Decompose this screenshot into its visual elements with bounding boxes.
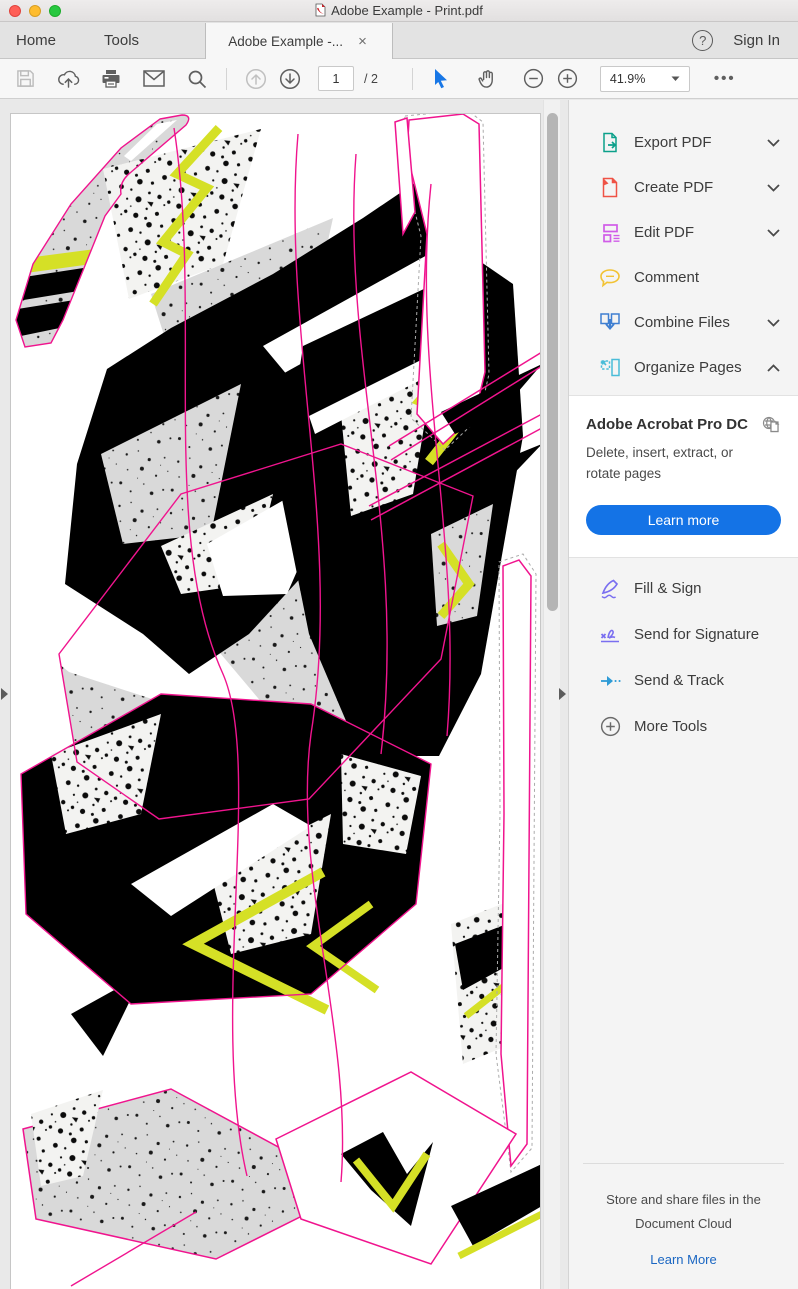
sidebar-item-create-pdf[interactable]: Create PDF: [569, 165, 798, 210]
sidebar-item-label: Create PDF: [634, 179, 766, 196]
footer-text-line2: Document Cloud: [583, 1212, 784, 1236]
comment-icon: [599, 267, 621, 289]
footer-learn-more-link[interactable]: Learn More: [583, 1252, 784, 1267]
next-page-icon[interactable]: [278, 67, 302, 91]
sidebar-item-label: Fill & Sign: [634, 580, 780, 597]
chevron-up-icon[interactable]: [766, 361, 780, 375]
panel-title: Adobe Acrobat Pro DC: [586, 416, 748, 433]
send-track-icon: [599, 670, 621, 692]
email-icon[interactable]: [142, 67, 166, 91]
window-title: Adobe Example - Print.pdf: [0, 3, 798, 18]
main-toolbar: / 2 41.9% •••: [0, 59, 798, 99]
save-icon[interactable]: [13, 67, 37, 91]
search-icon[interactable]: [185, 67, 209, 91]
sidebar-item-more-tools[interactable]: More Tools: [569, 704, 798, 750]
sidebar-item-organize-pages[interactable]: Organize Pages: [569, 345, 798, 390]
previous-page-icon[interactable]: [244, 67, 268, 91]
sidebar-item-label: Comment: [634, 269, 780, 286]
export-pdf-icon: [599, 132, 621, 154]
sidebar-item-send-track[interactable]: Send & Track: [569, 658, 798, 704]
sidebar-item-label: Edit PDF: [634, 224, 766, 241]
create-pdf-icon: [599, 177, 621, 199]
help-icon[interactable]: ?: [692, 30, 713, 51]
page-total-label: / 2: [364, 72, 378, 86]
window-titlebar: Adobe Example - Print.pdf: [0, 0, 798, 22]
more-options-icon[interactable]: •••: [714, 70, 736, 87]
organize-pages-icon: [599, 357, 621, 379]
sidebar-item-label: Send & Track: [634, 672, 780, 689]
footer-divider: [583, 1163, 784, 1164]
sidebar-item-export-pdf[interactable]: Export PDF: [569, 120, 798, 165]
page-number-input[interactable]: [318, 66, 354, 91]
hand-tool-icon[interactable]: [475, 67, 499, 91]
document-tab-label: Adobe Example -...: [228, 34, 343, 49]
sidebar-item-edit-pdf[interactable]: Edit PDF: [569, 210, 798, 255]
navigation-pane-toggle[interactable]: [0, 686, 10, 702]
tools-pane-toggle[interactable]: [558, 686, 568, 702]
tools-sidebar: Export PDFCreate PDFEdit PDFCommentCombi…: [568, 100, 798, 1289]
pdf-page[interactable]: [10, 113, 541, 1289]
send-signature-icon: [599, 624, 621, 646]
tab-bar: Home Tools Adobe Example -... × ? Sign I…: [0, 22, 798, 59]
home-menu[interactable]: Home: [0, 22, 80, 58]
fill-sign-icon: [599, 578, 621, 600]
organize-pages-panel: Adobe Acrobat Pro DC Delete, insert, ext…: [569, 395, 798, 558]
chevron-down-icon[interactable]: [766, 136, 780, 150]
zoom-in-icon[interactable]: [556, 67, 580, 91]
footer-text-line1: Store and share files in the: [583, 1188, 784, 1212]
zoom-out-icon[interactable]: [522, 67, 546, 91]
document-viewport: [0, 100, 568, 1289]
primary-tool-list: Export PDFCreate PDFEdit PDFCommentCombi…: [569, 100, 798, 390]
zoom-level-value: 41.9%: [610, 72, 645, 86]
document-scrollbar-thumb[interactable]: [547, 113, 558, 611]
learn-more-button[interactable]: Learn more: [586, 505, 781, 535]
sidebar-item-send-for-signature[interactable]: Send for Signature: [569, 612, 798, 658]
more-tools-icon: [599, 716, 621, 738]
chevron-down-icon[interactable]: [766, 316, 780, 330]
sidebar-item-label: Combine Files: [634, 314, 766, 331]
sidebar-item-label: More Tools: [634, 718, 780, 735]
chevron-down-icon[interactable]: [766, 226, 780, 240]
tools-menu[interactable]: Tools: [80, 22, 163, 58]
chevron-down-icon: [671, 76, 680, 82]
sidebar-item-comment[interactable]: Comment: [569, 255, 798, 300]
pdf-file-icon: [315, 4, 326, 17]
chevron-down-icon[interactable]: [766, 181, 780, 195]
share-upload-icon[interactable]: [56, 67, 80, 91]
pdf-artwork-graphics: [11, 114, 541, 1289]
zoom-level-select[interactable]: 41.9%: [600, 66, 690, 92]
document-tab[interactable]: Adobe Example -... ×: [205, 23, 393, 59]
sidebar-item-label: Organize Pages: [634, 359, 766, 376]
sidebar-item-fill-sign[interactable]: Fill & Sign: [569, 566, 798, 612]
edit-pdf-icon: [599, 222, 621, 244]
sidebar-item-label: Export PDF: [634, 134, 766, 151]
combine-files-icon: [599, 312, 621, 334]
sidebar-item-label: Send for Signature: [634, 626, 780, 643]
secondary-tool-list: Fill & SignSend for SignatureSend & Trac…: [569, 558, 798, 750]
sidebar-item-combine-files[interactable]: Combine Files: [569, 300, 798, 345]
document-cloud-footer: Store and share files in the Document Cl…: [569, 1163, 798, 1267]
tab-close-icon[interactable]: ×: [355, 32, 370, 51]
select-tool-icon[interactable]: [429, 67, 453, 91]
panel-description: Delete, insert, extract, or rotate pages: [586, 443, 771, 485]
print-icon[interactable]: [99, 67, 123, 91]
acrobat-pages-icon: [762, 416, 781, 433]
sign-in-button[interactable]: Sign In: [733, 32, 780, 49]
